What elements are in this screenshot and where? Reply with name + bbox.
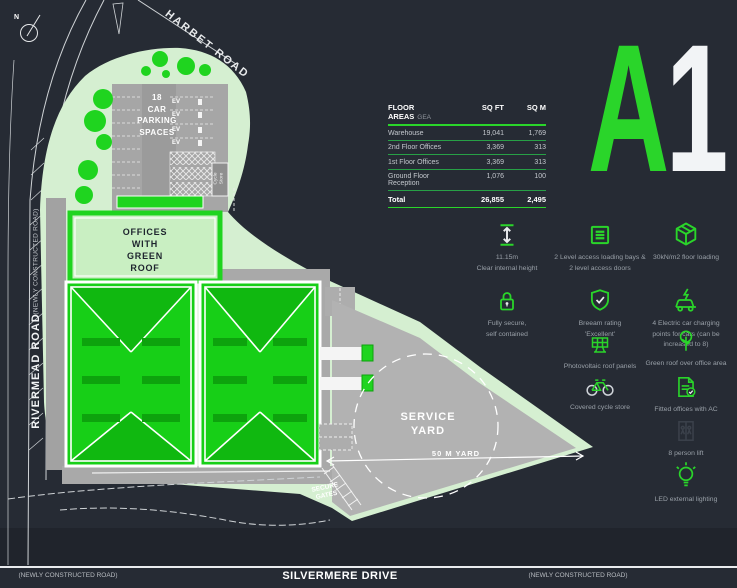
padlock-icon [495,288,519,314]
table-total-row: Total 26,855 2,495 [388,191,546,208]
table-header: FLOOR AREASGEA SQ FT SQ M [388,103,546,126]
table-row: 2nd Floor Offices 3,369 313 [388,141,546,156]
service-yard-label: SERVICE YARD [378,410,478,439]
feature-secure: Fully secure, self contained [462,288,552,340]
ev-charging-icon [672,286,700,314]
feature-led-lighting: LED external lighting [636,460,736,506]
ev-bay-label: EV [172,99,180,105]
floor-areas-table: FLOOR AREASGEA SQ FT SQ M Warehouse 19,0… [388,103,546,208]
offices-label: OFFICES WITH GREEN ROOF [95,226,195,275]
sidewalk [46,198,66,470]
site-plan-page: N HARBET ROAD RIVERMEAD ROAD (NEWLY CONS… [0,0,737,588]
loading-bay-icon [587,222,613,248]
solar-panel-icon [587,333,613,357]
silvermere-road-band [0,528,737,567]
lift-icon [673,418,699,444]
ev-bay-label: EV [172,127,180,133]
bulb-icon [672,460,700,490]
height-arrow-icon [494,222,520,248]
table-row: Warehouse 19,041 1,769 [388,126,546,141]
ev-bay-label: EV [172,140,180,146]
unit-number: 1 [666,34,725,183]
feature-green-roof: Green roof over office area [636,328,736,370]
feature-lift: 8 person lift [636,418,736,460]
silvermere-drive-label: SILVERMERE DRIVE [280,570,400,582]
bottom-right-road-label: (NEWLY CONSTRUCTED ROAD) [528,572,628,579]
table-row: 1st Floor Offices 3,369 313 [388,155,546,170]
rivermead-road-label: RIVERMEAD ROAD [30,311,42,431]
feature-clear-height: 11.15m Clear internal height [462,222,552,274]
north-arrow-icon [21,15,41,42]
feature-floor-loading: 30kN/m2 floor loading [636,220,736,264]
shield-check-icon [587,287,613,314]
yard-dimension-label: 50 M YARD [416,449,496,458]
ev-bay-label: EV [172,112,180,118]
green-strip [117,196,203,208]
south-pavement [62,466,332,484]
table-row: Ground Floor Reception 1,076 100 [388,170,546,192]
unit-letter: A [588,34,666,183]
col-header-sqm: SQ M [504,103,546,112]
table-title: FLOOR AREAS [388,103,414,121]
north-label: N [14,14,19,21]
cube-icon [672,220,700,248]
feature-fitted-offices: Fitted offices with AC [636,374,736,416]
green-roof-icon [673,328,699,354]
road-edge-line [0,566,737,568]
cycle-store-bays [170,152,215,196]
bicycle-icon [585,374,615,398]
col-header-sqft: SQ FT [452,103,504,112]
warehouse-roof [66,282,320,466]
rivermead-road-sub-label: (NEWLY CONSTRUCTED ROAD) [33,202,40,322]
fitted-office-icon [673,374,699,400]
bottom-left-road-label: (NEWLY CONSTRUCTED ROAD) [18,572,118,579]
unit-badge: A 1 [588,34,725,183]
table-subtitle: GEA [417,114,431,121]
cycle-store-label: Cycle Store [214,162,227,194]
